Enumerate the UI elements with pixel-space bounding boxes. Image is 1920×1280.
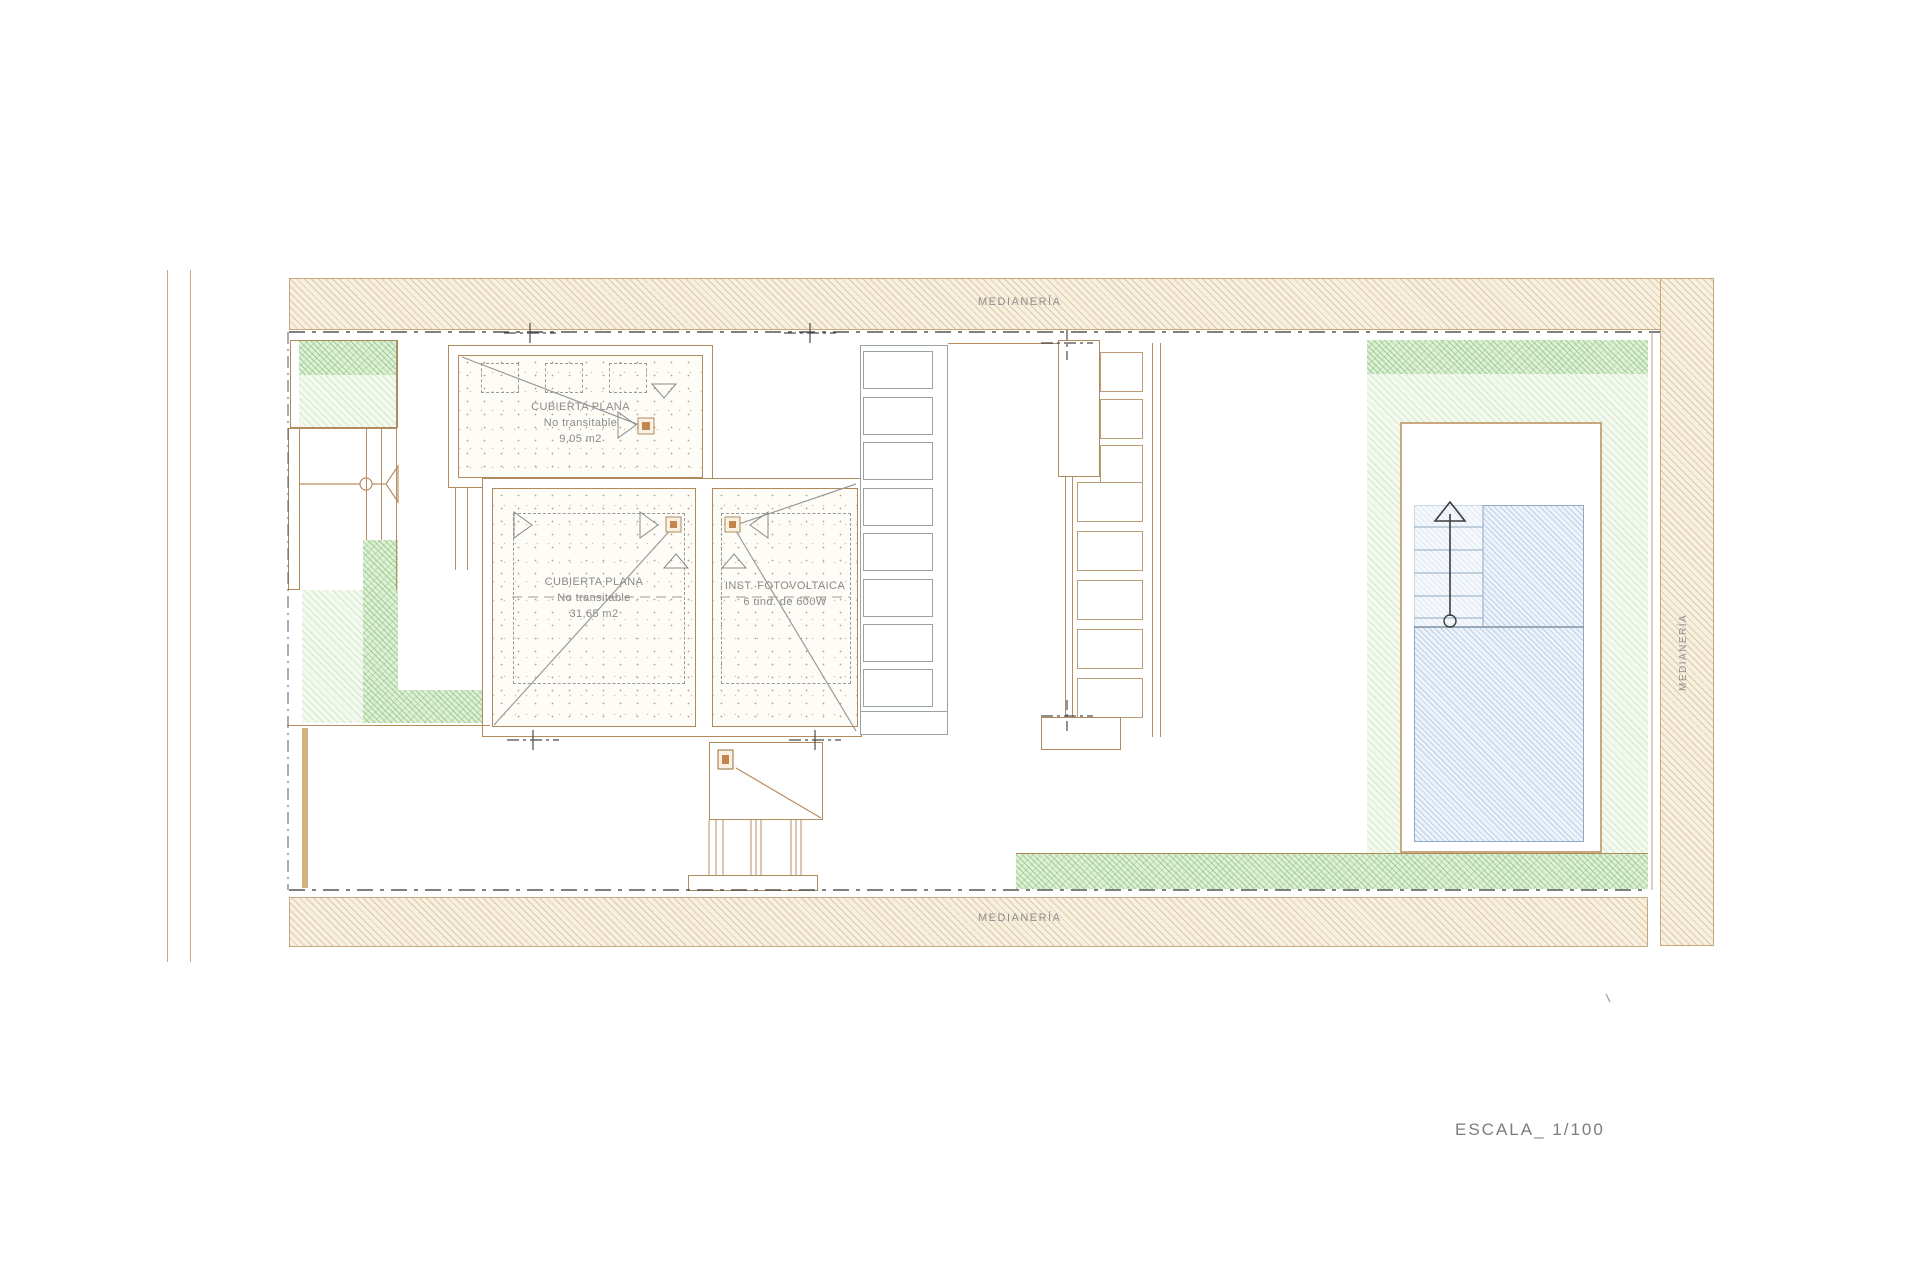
terrace-bottom-edge xyxy=(287,725,490,726)
party-wall-label-bottom: MEDIANERÍA xyxy=(978,912,1061,924)
wing-wall-line xyxy=(1072,477,1073,717)
pergola-slats xyxy=(860,345,948,735)
garden-topright-dark xyxy=(1367,340,1648,374)
garden-bottom-dark-bar xyxy=(1016,853,1648,889)
roof-main-name: CUBIERTA PLANA xyxy=(493,574,695,590)
terrace-wall-line xyxy=(1152,343,1153,737)
sheet-margin-line xyxy=(190,270,191,962)
roof-connector-line xyxy=(455,488,456,570)
terrace-wall-line xyxy=(1160,343,1161,737)
wing-wall-bar xyxy=(1058,340,1100,477)
stray-mark xyxy=(1606,994,1610,1002)
porch-post-line xyxy=(381,428,382,540)
party-wall-strip-bottom: MEDIANERÍA xyxy=(289,897,1648,947)
roof-small-area: 9,05 m2 xyxy=(459,431,702,447)
garden-left-light xyxy=(302,590,363,723)
louver xyxy=(1100,399,1143,439)
roof-main: CUBIERTA PLANA No transitable 31,65 m2 xyxy=(492,488,696,727)
skylight xyxy=(609,363,647,393)
party-wall-strip-top: MEDIANERÍA xyxy=(289,278,1714,330)
garden-left-dark-horizontal xyxy=(363,690,483,723)
roof-small-name: CUBIERTA PLANA xyxy=(459,399,702,415)
roof-connector-line xyxy=(467,488,468,570)
wing-top-wall xyxy=(948,343,1058,344)
roof-small-note: No transitable xyxy=(459,415,702,431)
louver xyxy=(1077,482,1143,522)
entry-canopy-box xyxy=(709,742,823,820)
party-wall-strip-right: MEDIANERÍA xyxy=(1660,278,1714,946)
roof-main-note: No transitable xyxy=(493,590,695,606)
garden-topleft-light xyxy=(299,375,397,427)
porch-wall xyxy=(288,428,300,590)
roof-photovoltaic: INST. FOTOVOLTAICA 6 und. de 600W xyxy=(712,488,858,727)
porch-top-wall xyxy=(290,428,397,429)
sheet-margin-line xyxy=(167,270,168,962)
pv-name: INST. FOTOVOLTAICA xyxy=(713,578,857,594)
louver xyxy=(1077,531,1143,571)
louver xyxy=(1077,580,1143,620)
wall-stub xyxy=(302,728,308,888)
party-wall-label-top: MEDIANERÍA xyxy=(978,296,1061,308)
site-plan-sheet: MEDIANERÍA MEDIANERÍA MEDIANERÍA CUBIERT… xyxy=(0,0,1920,1280)
pv-detail: 6 und. de 600W xyxy=(713,594,857,610)
louver xyxy=(1077,678,1143,718)
porch-post-line xyxy=(366,428,367,540)
roof-main-area: 31,65 m2 xyxy=(493,606,695,622)
louver xyxy=(1100,352,1143,392)
louver xyxy=(1100,445,1143,485)
party-wall-label-right: MEDIANERÍA xyxy=(1678,561,1689,691)
entry-stairs xyxy=(709,820,801,875)
entry-landing xyxy=(688,875,818,891)
pool-stair-block xyxy=(1414,505,1483,627)
scale-note: ESCALA_ 1/100 xyxy=(1455,1120,1605,1140)
wing-wall-line xyxy=(1065,477,1066,717)
garden-topleft-dark xyxy=(299,341,397,375)
porch-symbol xyxy=(300,466,398,502)
roof-small: CUBIERTA PLANA No transitable 9,05 m2 xyxy=(458,355,703,478)
wing-lower-box xyxy=(1041,717,1121,750)
louver xyxy=(1077,629,1143,669)
skylight xyxy=(545,363,583,393)
skylight xyxy=(481,363,519,393)
garden-edge-line xyxy=(396,340,397,590)
